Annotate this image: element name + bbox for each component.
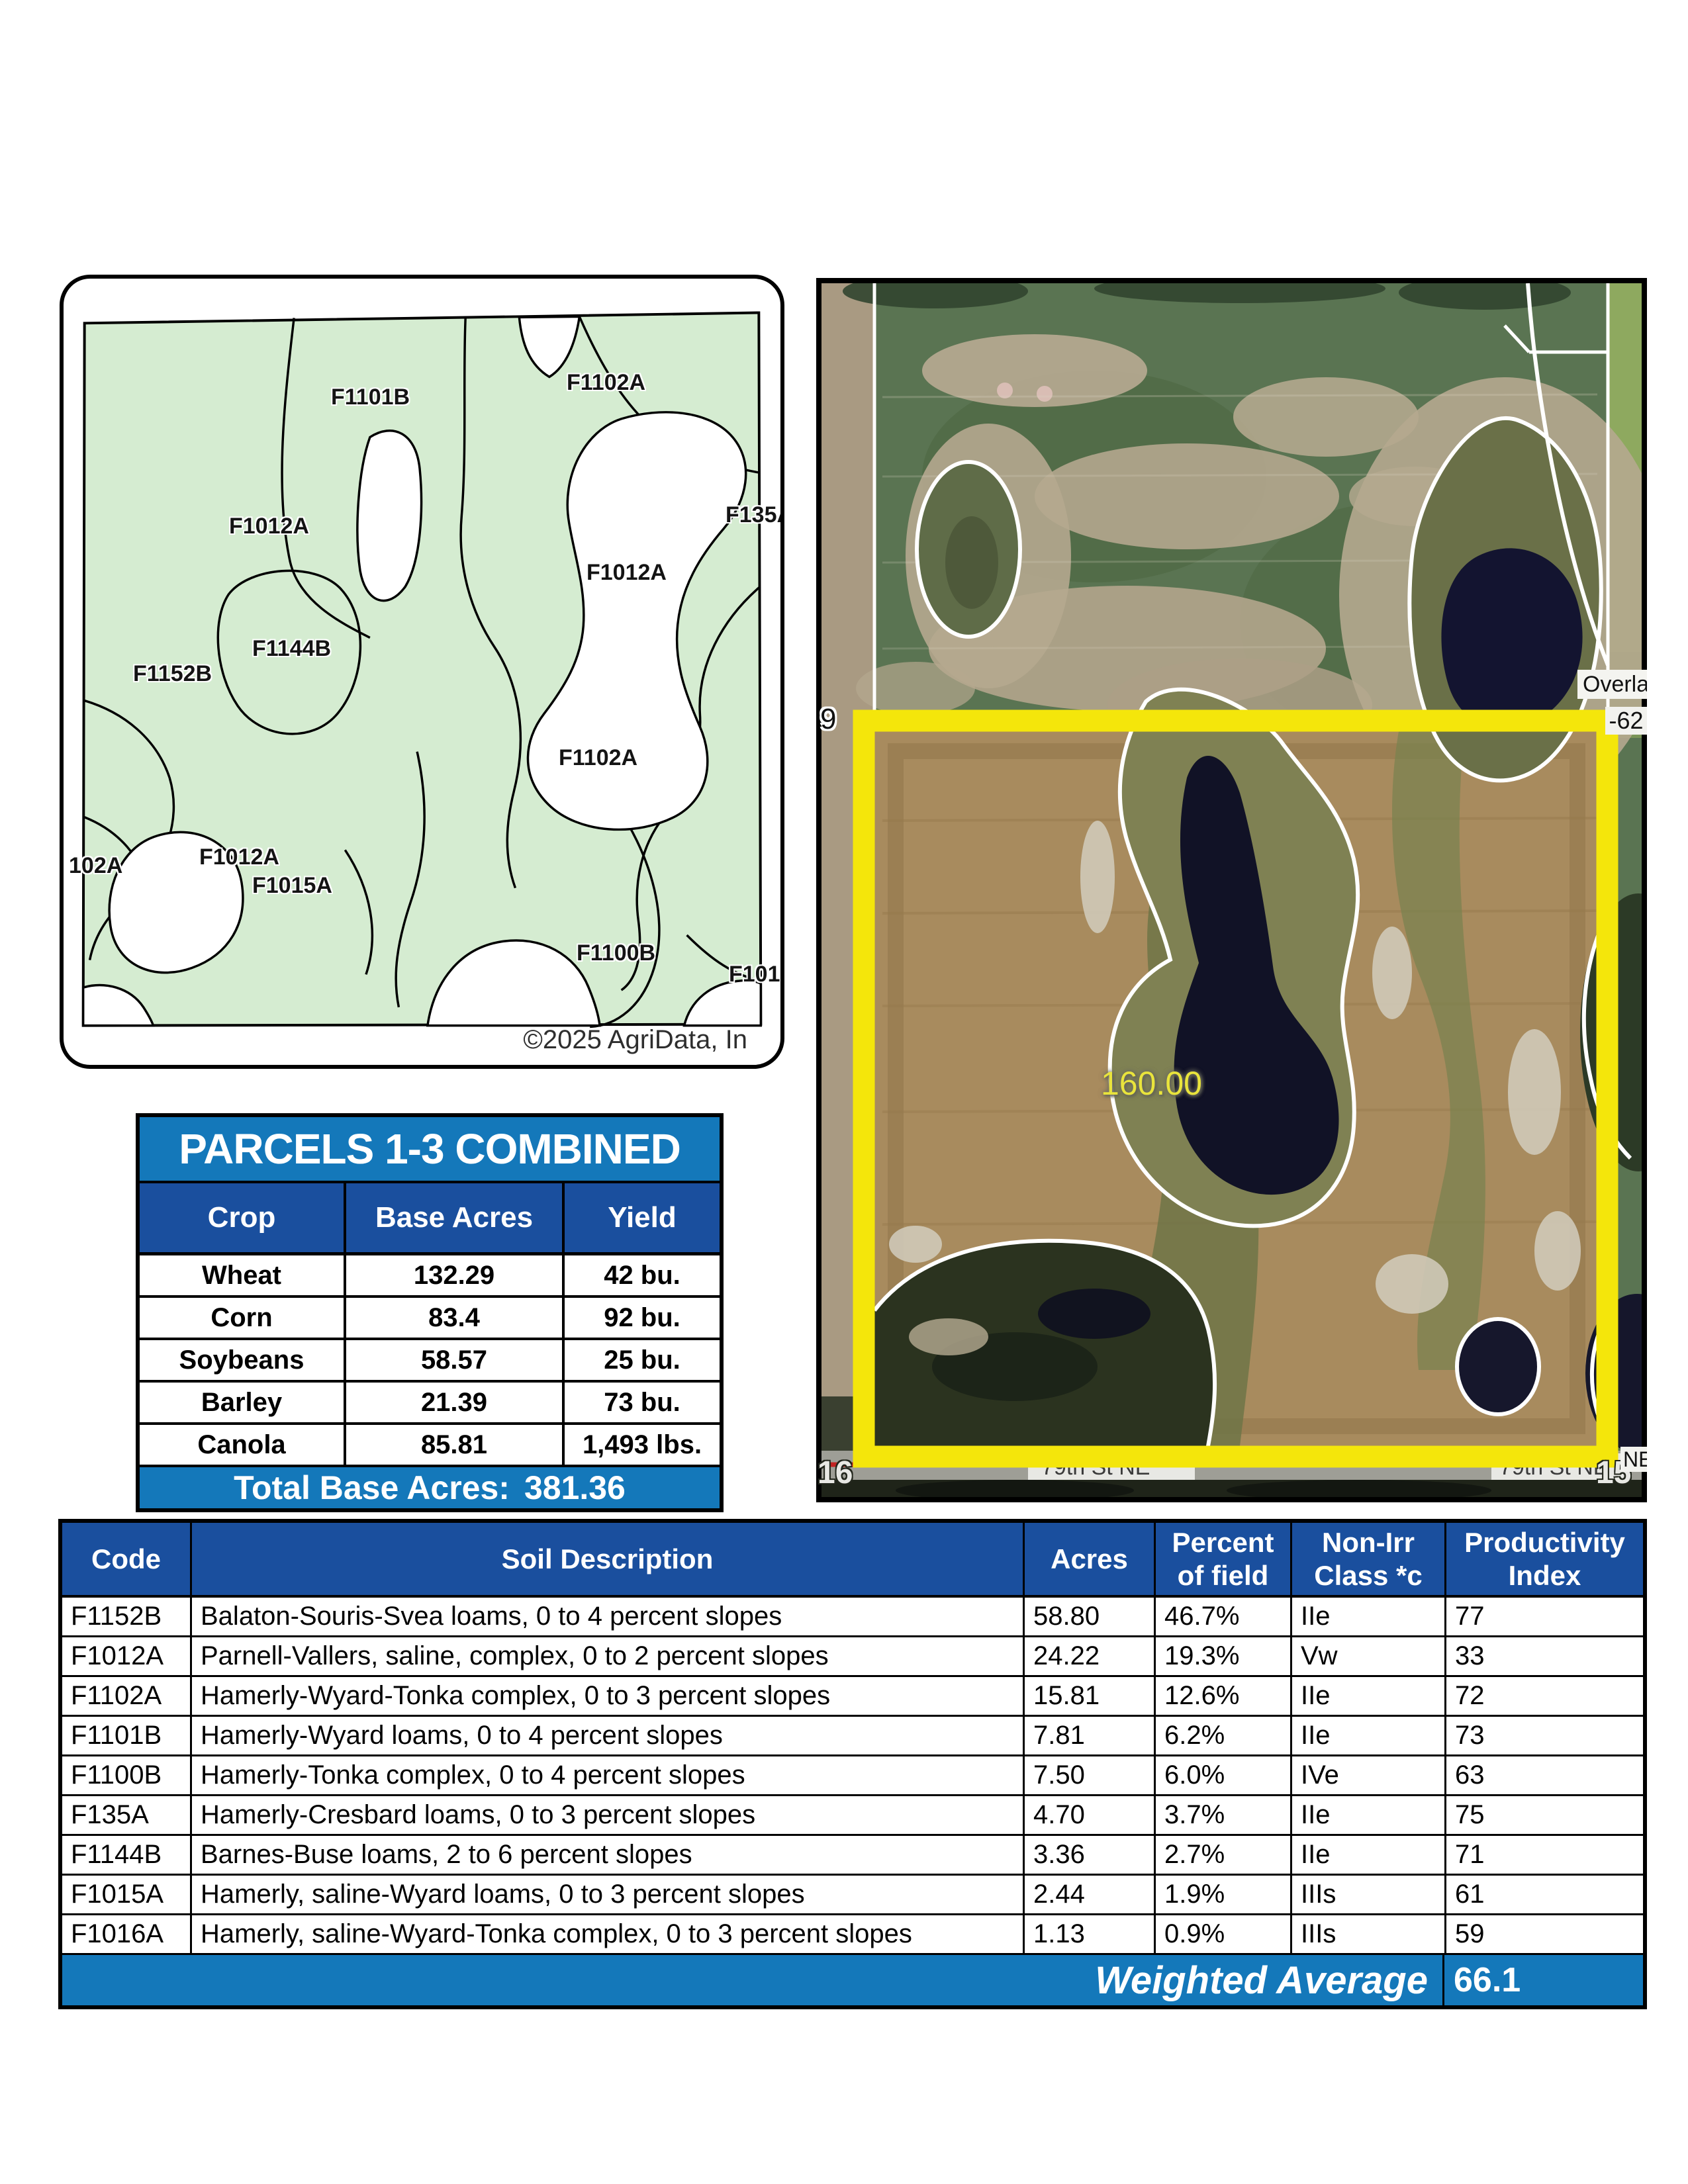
overland-road-label: Overland	[1577, 670, 1647, 699]
table-cell: IVe	[1292, 1756, 1446, 1796]
table-cell: Hamerly-Wyard-Tonka complex, 0 to 3 perc…	[192, 1677, 1025, 1717]
column-header: Productivity Index	[1446, 1523, 1643, 1598]
table-cell: 92 bu.	[565, 1298, 720, 1340]
table-cell: Balaton-Souris-Svea loams, 0 to 4 percen…	[192, 1598, 1025, 1637]
table-cell: 73 bu.	[565, 1383, 720, 1425]
table-cell: 46.7%	[1156, 1598, 1292, 1637]
table-cell: IIe	[1292, 1796, 1446, 1836]
aerial-photo-panel: 79th St NE 79th St NE 160.00 9 -62 Overl…	[816, 278, 1647, 1502]
table-cell: 58.80	[1025, 1598, 1156, 1637]
column-header: Yield	[565, 1183, 720, 1255]
table-cell: Parnell-Vallers, saline, complex, 0 to 2…	[192, 1637, 1025, 1677]
table-cell: 3.36	[1025, 1836, 1156, 1876]
table-cell: 12.6%	[1156, 1677, 1292, 1717]
column-header: Acres	[1025, 1523, 1156, 1598]
table-cell: Vw	[1292, 1637, 1446, 1677]
aerial-svg: 79th St NE 79th St NE	[816, 278, 1647, 1502]
map-label: F1144B	[252, 636, 331, 662]
map-copyright: ©2025 AgriData, In	[523, 1025, 747, 1055]
soil-table-footer: Weighted Average 66.1	[62, 1955, 1643, 2005]
map-label: F1152B	[133, 661, 212, 687]
table-cell: 72	[1446, 1677, 1643, 1717]
table-cell: F1101B	[62, 1717, 192, 1756]
table-cell: Soybeans	[140, 1340, 346, 1383]
section-number-label: 16	[818, 1455, 853, 1491]
map-label: F1016A	[729, 962, 784, 987]
column-header: Non-Irr Class *c	[1292, 1523, 1446, 1598]
table-cell: 73	[1446, 1717, 1643, 1756]
column-header: Code	[62, 1523, 192, 1598]
marsh-bottom-left	[874, 1241, 1215, 1446]
map-label: F1101B	[331, 385, 410, 410]
table-cell: 6.0%	[1156, 1756, 1292, 1796]
table-cell: Hamerly-Tonka complex, 0 to 4 percent sl…	[192, 1756, 1025, 1796]
column-header: Percent of field	[1156, 1523, 1292, 1598]
table-cell: Hamerly, saline-Wyard loams, 0 to 3 perc…	[192, 1876, 1025, 1915]
weighted-average-label: Weighted Average	[62, 1955, 1444, 2005]
table-cell: 75	[1446, 1796, 1643, 1836]
table-cell: 85.81	[346, 1425, 565, 1467]
table-cell: IIe	[1292, 1836, 1446, 1876]
parcels-table-title: PARCELS 1-3 COMBINED	[140, 1117, 720, 1183]
table-cell: IIe	[1292, 1598, 1446, 1637]
parcels-table-footer: Total Base Acres: 381.36	[140, 1467, 720, 1508]
total-base-acres-value: 381.36	[524, 1469, 626, 1507]
table-cell: 61	[1446, 1876, 1643, 1915]
map-label: 102A	[69, 853, 122, 879]
table-cell: Barnes-Buse loams, 2 to 6 percent slopes	[192, 1836, 1025, 1876]
table-cell: 59	[1446, 1915, 1643, 1955]
table-cell: F135A	[62, 1796, 192, 1836]
table-cell: Barley	[140, 1383, 346, 1425]
column-header: Crop	[140, 1183, 346, 1255]
table-cell: IIIs	[1292, 1915, 1446, 1955]
table-cell: 25 bu.	[565, 1340, 720, 1383]
table-cell: F1100B	[62, 1756, 192, 1796]
table-cell: 2.44	[1025, 1876, 1156, 1915]
pond-small	[1457, 1319, 1539, 1414]
table-cell: Corn	[140, 1298, 346, 1340]
map-label: F1012A	[229, 514, 309, 539]
section-number-label: 9	[820, 703, 836, 736]
table-cell: 4.70	[1025, 1796, 1156, 1836]
table-cell: 33	[1446, 1637, 1643, 1677]
table-cell: 21.39	[346, 1383, 565, 1425]
table-cell: 3.7%	[1156, 1796, 1292, 1836]
table-cell: 19.3%	[1156, 1637, 1292, 1677]
table-cell: Hamerly-Cresbard loams, 0 to 3 percent s…	[192, 1796, 1025, 1836]
table-cell: 1,493 lbs.	[565, 1425, 720, 1467]
page: F1101B F1102A F1012A F135A F1012A F1144B…	[0, 0, 1688, 2184]
table-cell: 83.4	[346, 1298, 565, 1340]
parcel-acreage-label: 160.00	[1101, 1064, 1202, 1103]
table-cell: F1012A	[62, 1637, 192, 1677]
table-cell: F1152B	[62, 1598, 192, 1637]
map-label: F1102A	[559, 745, 637, 771]
map-label: F135A	[726, 502, 784, 528]
map-label: F1012A	[586, 560, 667, 586]
table-cell: 132.29	[346, 1255, 565, 1298]
table-cell: 58.57	[346, 1340, 565, 1383]
soil-table: Code Soil Description Acres Percent of f…	[58, 1519, 1647, 2009]
table-cell: 63	[1446, 1756, 1643, 1796]
table-cell: 24.22	[1025, 1637, 1156, 1677]
table-cell: 77	[1446, 1598, 1643, 1637]
total-base-acres-label: Total Base Acres:	[234, 1469, 510, 1507]
table-cell: IIe	[1292, 1677, 1446, 1717]
table-cell: 7.50	[1025, 1756, 1156, 1796]
weighted-average-value: 66.1	[1444, 1955, 1649, 2005]
column-header: Soil Description	[192, 1523, 1025, 1598]
table-cell: 15.81	[1025, 1677, 1156, 1717]
table-cell: F1015A	[62, 1876, 192, 1915]
column-header: Base Acres	[346, 1183, 565, 1255]
table-cell: 1.13	[1025, 1915, 1156, 1955]
road-ne-label: NE	[1620, 1447, 1647, 1472]
table-cell: Hamerly-Wyard loams, 0 to 4 percent slop…	[192, 1717, 1025, 1756]
map-label: F1012A	[199, 844, 279, 870]
road-ref-label: -62	[1605, 707, 1647, 735]
table-cell: 6.2%	[1156, 1717, 1292, 1756]
map-label: F1015A	[252, 873, 332, 899]
map-label: F1102A	[567, 370, 645, 396]
table-cell: 42 bu.	[565, 1255, 720, 1298]
table-cell: F1102A	[62, 1677, 192, 1717]
table-cell: Hamerly, saline-Wyard-Tonka complex, 0 t…	[192, 1915, 1025, 1955]
table-cell: IIIs	[1292, 1876, 1446, 1915]
table-cell: 0.9%	[1156, 1915, 1292, 1955]
table-cell: 7.81	[1025, 1717, 1156, 1756]
table-cell: Canola	[140, 1425, 346, 1467]
table-cell: 2.7%	[1156, 1836, 1292, 1876]
parcels-table: PARCELS 1-3 COMBINED Crop Base Acres Yie…	[136, 1113, 724, 1512]
map-label: F1100B	[577, 940, 655, 966]
table-cell: F1144B	[62, 1836, 192, 1876]
table-cell: F1016A	[62, 1915, 192, 1955]
table-cell: 1.9%	[1156, 1876, 1292, 1915]
table-cell: 71	[1446, 1836, 1643, 1876]
table-cell: IIe	[1292, 1717, 1446, 1756]
soil-map-panel: F1101B F1102A F1012A F135A F1012A F1144B…	[60, 275, 784, 1069]
table-cell: Wheat	[140, 1255, 346, 1298]
